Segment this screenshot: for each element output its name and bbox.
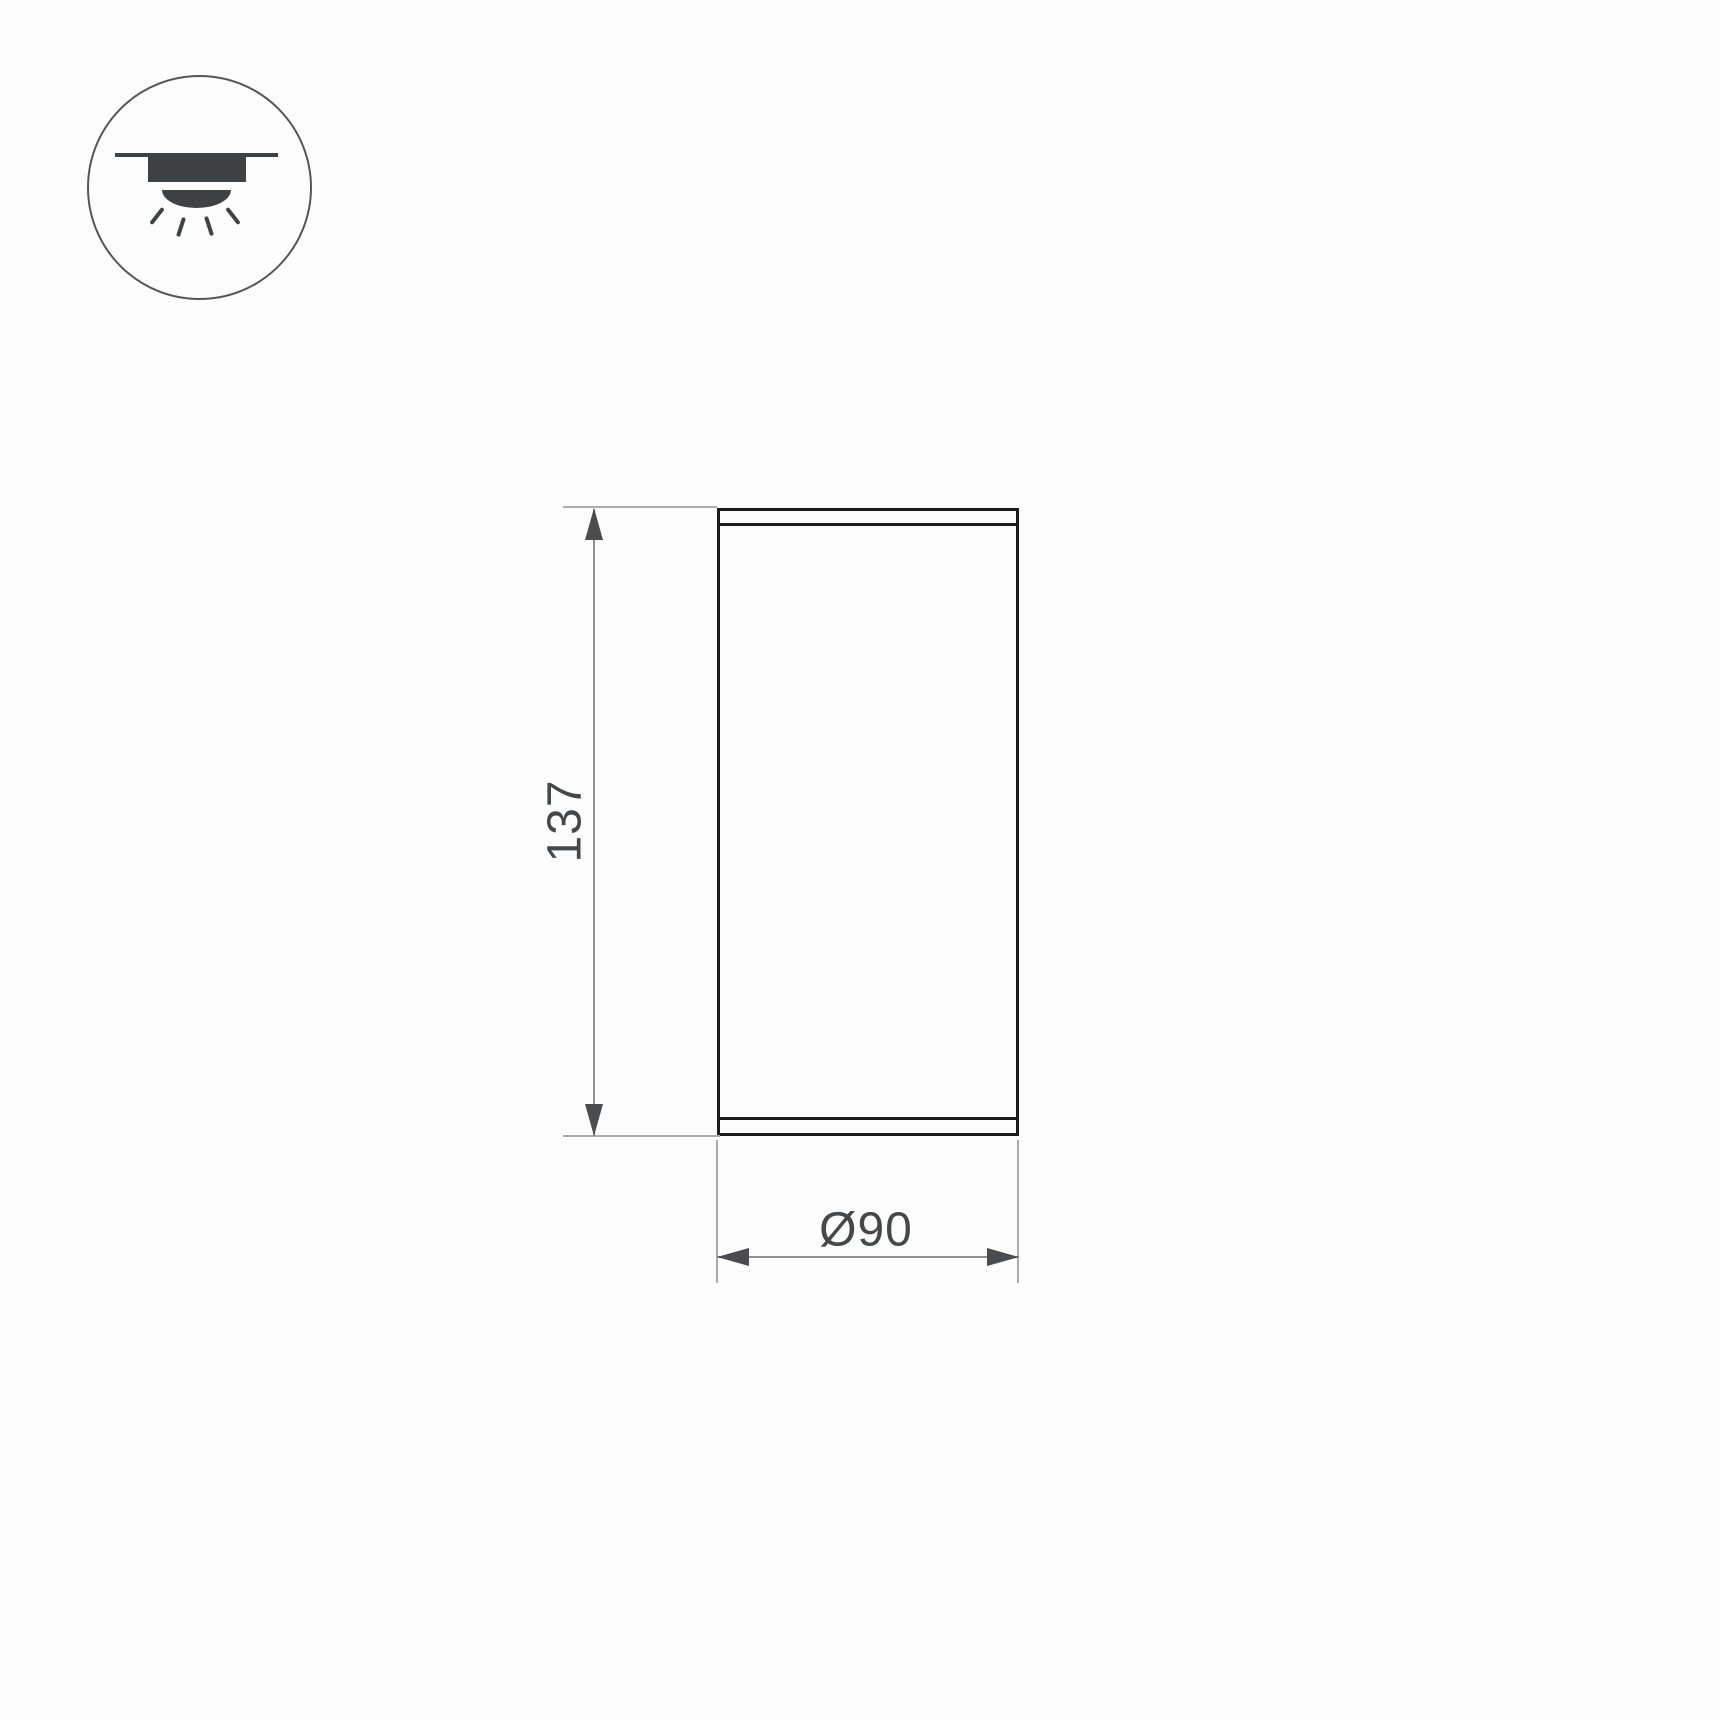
icon-light-ray — [176, 217, 186, 237]
fixture-bottom-cap-line — [717, 1117, 1019, 1120]
arrow-right-icon — [987, 1248, 1019, 1266]
arrow-left-icon — [717, 1248, 749, 1266]
height-dimension-label: 137 — [538, 779, 593, 862]
arrow-down-icon — [585, 1104, 603, 1136]
arrow-up-icon — [585, 508, 603, 540]
icon-light-ray — [149, 207, 164, 225]
icon-light-ray — [225, 207, 240, 225]
technical-drawing-canvas: 137 Ø90 — [0, 0, 1720, 1720]
height-dimension-line — [593, 509, 595, 1136]
icon-light-ray — [204, 216, 214, 236]
icon-fixture-body — [148, 153, 246, 182]
fixture-top-cap-line — [717, 523, 1019, 526]
icon-light-dome — [162, 190, 231, 208]
fixture-outline — [717, 508, 1019, 1136]
surface-mount-downlight-icon — [87, 75, 312, 300]
diameter-dimension-label: Ø90 — [819, 1203, 913, 1258]
